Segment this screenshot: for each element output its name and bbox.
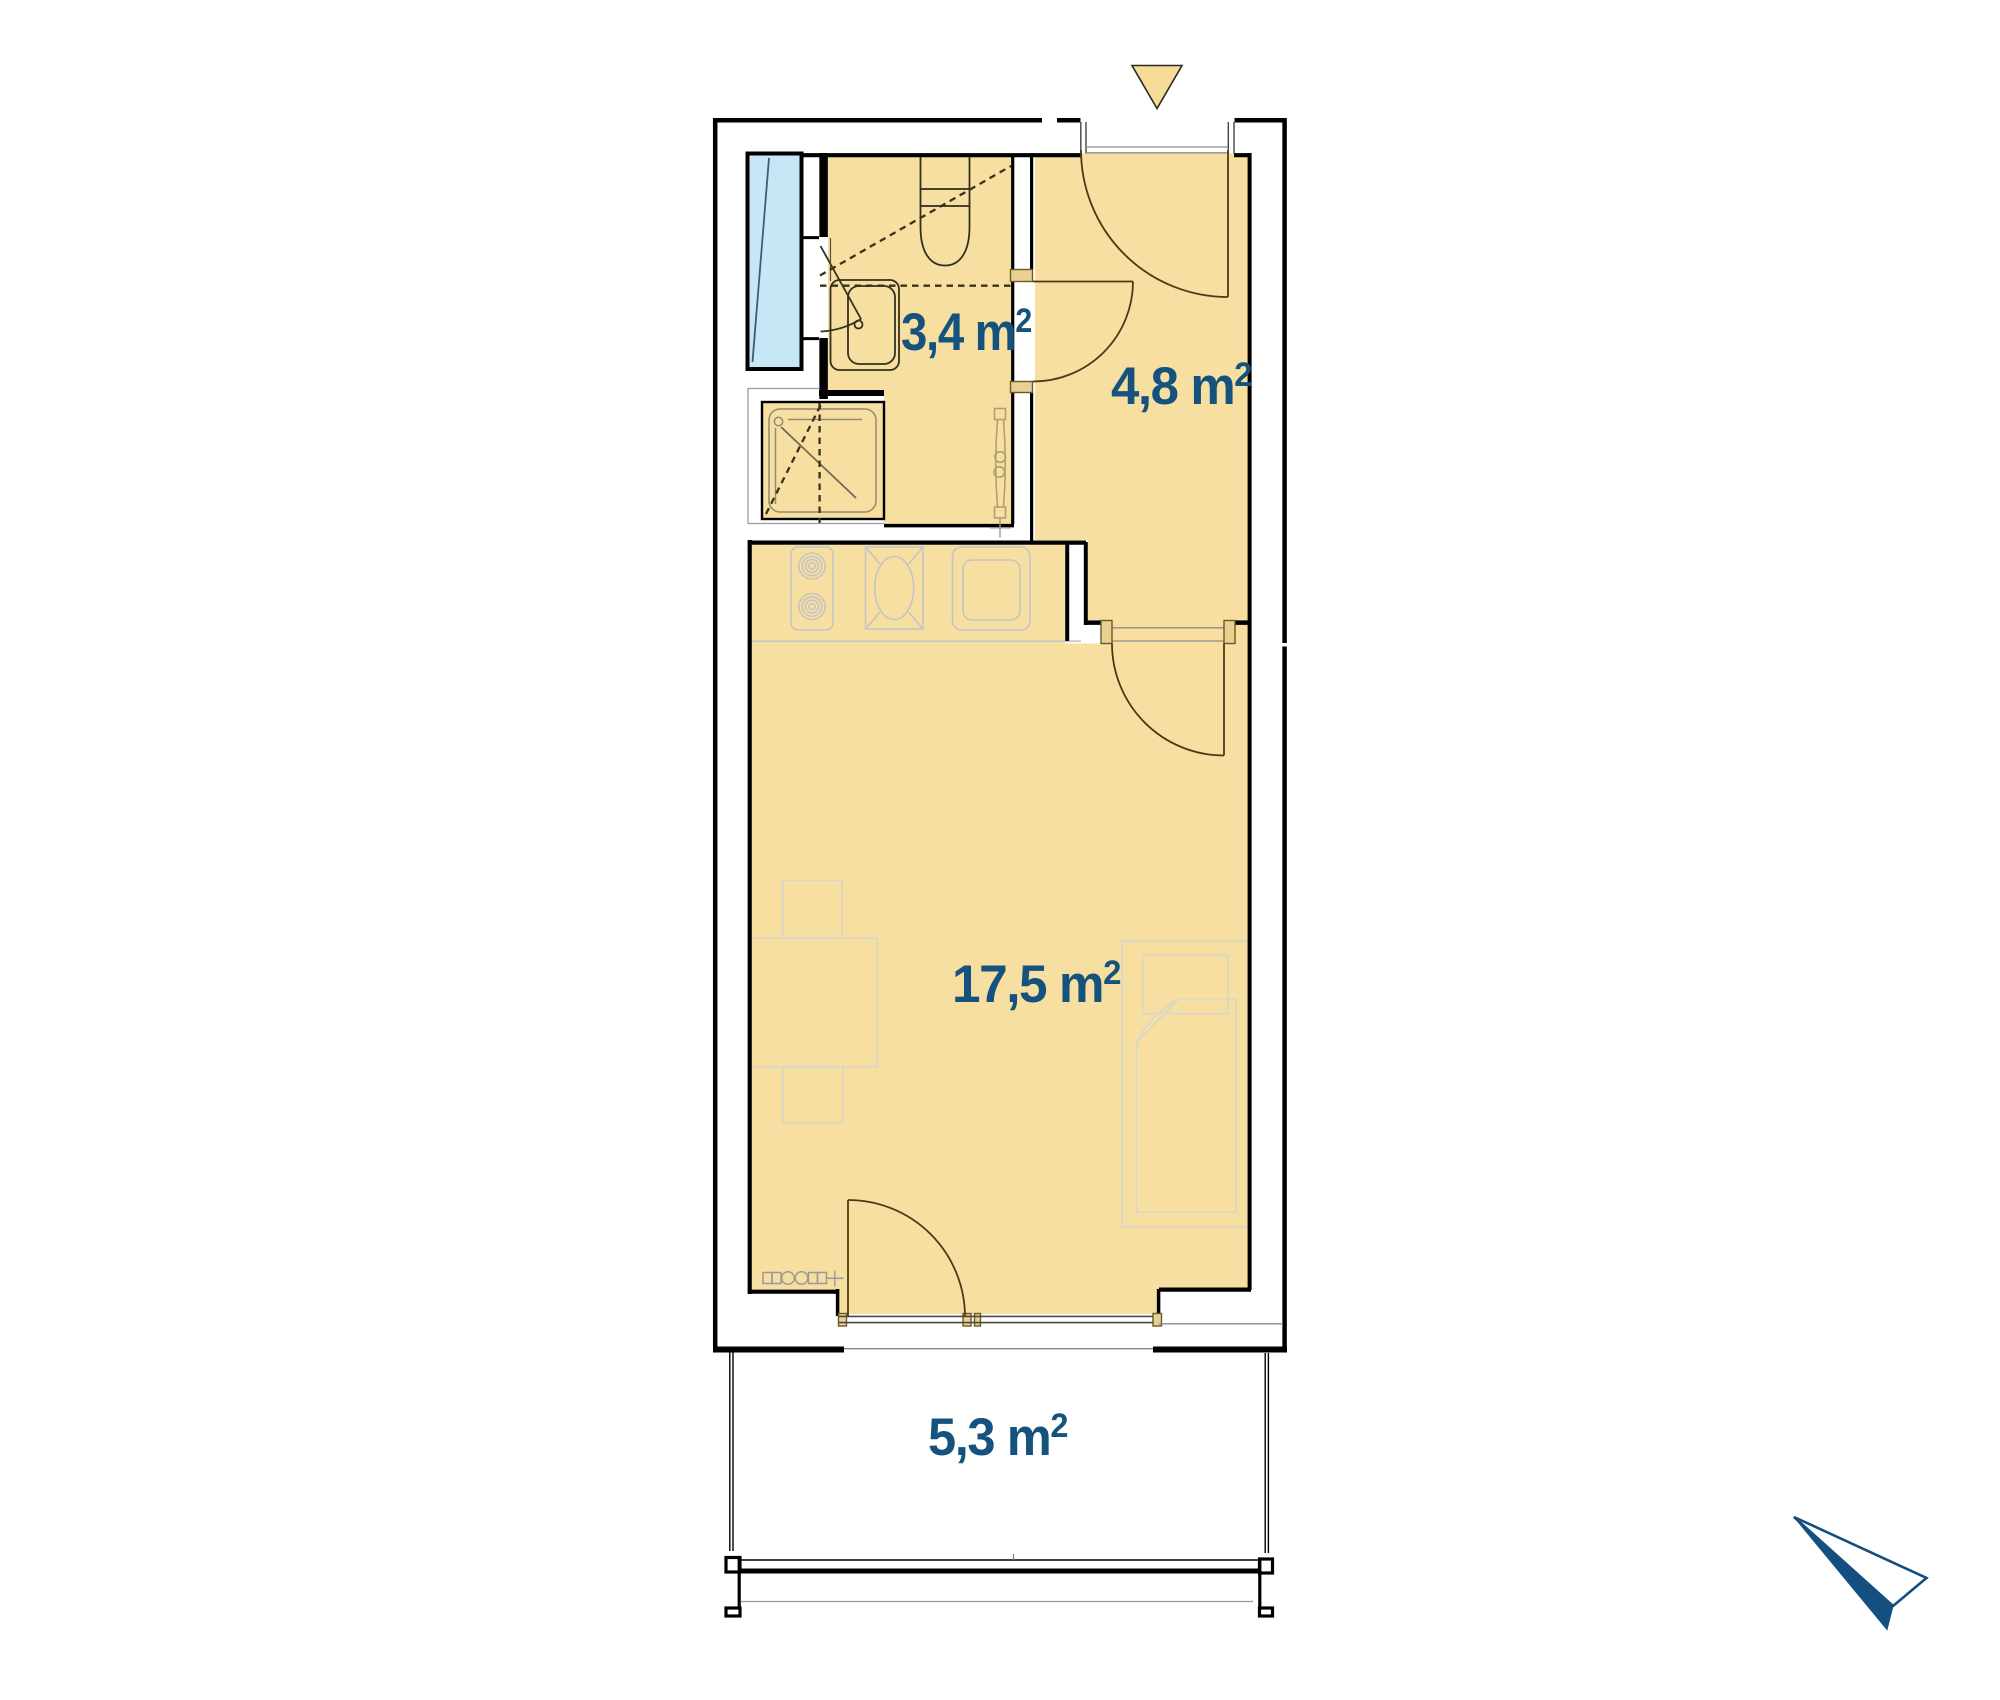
svg-text:4,8 m2: 4,8 m2 xyxy=(1111,356,1252,416)
svg-text:17,5 m2: 17,5 m2 xyxy=(952,954,1121,1014)
svg-text:5,3 m2: 5,3 m2 xyxy=(928,1407,1068,1467)
svg-text:3,4 m2: 3,4 m2 xyxy=(901,302,1032,362)
